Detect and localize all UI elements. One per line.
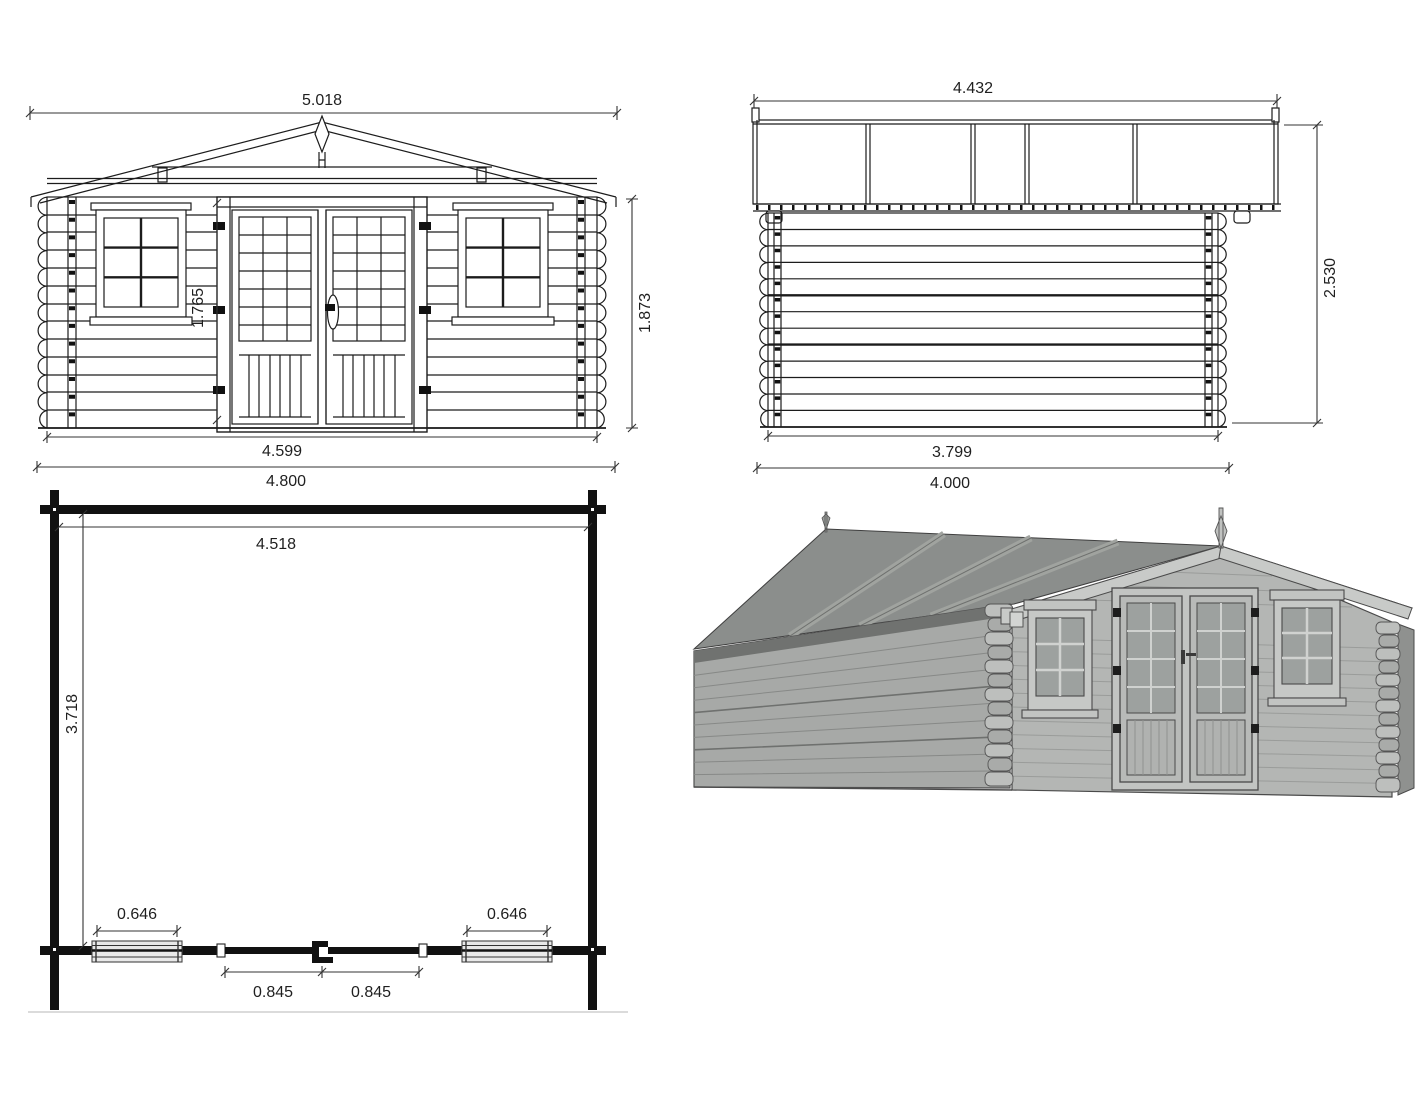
technical-drawing: 5.018 4.599 4.800 1.873 1.765 bbox=[0, 0, 1422, 1100]
dim-wall-width-line bbox=[43, 431, 601, 443]
plan-door-jamb-left bbox=[217, 944, 225, 957]
side-roof-band bbox=[753, 120, 1278, 204]
dim-wall-height-text: 1.873 bbox=[637, 293, 654, 333]
dim-door-leaves-line bbox=[221, 966, 423, 978]
window-head-trim bbox=[453, 203, 553, 210]
side-log-ends-left bbox=[760, 213, 768, 427]
plan-wall-top bbox=[40, 505, 606, 514]
plan-double-door bbox=[217, 941, 427, 963]
roof-finial-stem bbox=[319, 152, 325, 168]
dim-inner-width-line bbox=[55, 523, 592, 531]
door-handle-plate bbox=[328, 295, 339, 329]
side-dimensions bbox=[750, 94, 1323, 474]
window-sill bbox=[452, 317, 554, 325]
corner-gap bbox=[591, 508, 594, 511]
plan-door-leaf-left bbox=[225, 947, 316, 954]
dim-roof-length-line bbox=[750, 94, 1281, 108]
dim-overall-height-text: 2.530 bbox=[1322, 258, 1339, 298]
plan-door-leaf-right bbox=[328, 947, 419, 954]
roof-band-end-edges bbox=[757, 120, 1274, 204]
dim-roof-length-text: 4.432 bbox=[953, 80, 993, 97]
dim-window-right-line bbox=[463, 925, 551, 937]
window-3d-right bbox=[1268, 590, 1346, 706]
corner-gap bbox=[53, 508, 56, 511]
log-ends-left bbox=[38, 197, 47, 428]
dim-door-leaf-right-text: 0.845 bbox=[351, 984, 391, 1001]
dim-overall-length-text: 4.000 bbox=[930, 475, 970, 492]
plan-wall-left bbox=[50, 490, 59, 1010]
dim-door-height-text: 1.765 bbox=[190, 288, 207, 328]
dim-door-leaf-left-text: 0.845 bbox=[253, 984, 293, 1001]
dim-inner-depth-text: 3.718 bbox=[64, 694, 81, 734]
corner-gap bbox=[591, 948, 594, 951]
side-log-ends-right bbox=[1218, 213, 1226, 427]
door-latch bbox=[325, 304, 335, 311]
roof-end-tab-right bbox=[1272, 108, 1279, 122]
plan-door-jamb-right bbox=[419, 944, 427, 957]
side-elevation-view: 4.432 2.530 3.799 4.000 bbox=[750, 80, 1339, 492]
dim-overall-width-text: 4.800 bbox=[266, 473, 306, 490]
plan-window-right bbox=[462, 941, 552, 962]
perspective-3d-view bbox=[694, 508, 1414, 797]
side-wall-thick-logs bbox=[768, 295, 1218, 344]
dim-window-left-text: 0.646 bbox=[117, 906, 157, 923]
dim-window-right-text: 0.646 bbox=[487, 906, 527, 923]
dim-inner-width-text: 4.518 bbox=[256, 536, 296, 553]
front-double-door bbox=[213, 197, 431, 432]
window-sill bbox=[90, 317, 192, 325]
dim-roof-width-text: 5.018 bbox=[302, 92, 342, 109]
corner-gap bbox=[53, 948, 56, 951]
cabin-technical-drawing-page: 5.018 4.599 4.800 1.873 1.765 bbox=[0, 0, 1422, 1100]
gable-horizontal-boards bbox=[47, 167, 597, 184]
dim-window-left-line bbox=[93, 925, 181, 937]
side-wall bbox=[768, 213, 1218, 427]
side-notch-strip-right bbox=[1205, 213, 1212, 427]
right-side-wall-sliver bbox=[1398, 624, 1414, 795]
front-left-window bbox=[90, 203, 192, 325]
eave-lip-right bbox=[1234, 211, 1250, 223]
roof-panel-dividers bbox=[866, 124, 1137, 204]
front-gable-finial bbox=[1215, 508, 1227, 548]
roof-finial bbox=[315, 116, 329, 152]
log-ends-right bbox=[597, 197, 606, 428]
front-right-window bbox=[452, 203, 554, 325]
roof-end-tab-left bbox=[752, 108, 759, 122]
dim-wall-length-line bbox=[764, 430, 1222, 442]
plan-wall-right bbox=[588, 490, 597, 1010]
door-3d bbox=[1112, 588, 1259, 790]
plan-window-left bbox=[92, 941, 182, 962]
dim-wall-length-text: 3.799 bbox=[932, 444, 972, 461]
side-notch-strip-left bbox=[774, 213, 781, 427]
eave-bracket bbox=[1010, 612, 1023, 627]
front-elevation-view: 5.018 4.599 4.800 1.873 1.765 bbox=[26, 92, 654, 490]
window-head-trim bbox=[91, 203, 191, 210]
dim-overall-width-line bbox=[33, 461, 619, 473]
window-3d-left bbox=[1022, 600, 1098, 718]
dim-overall-length-line bbox=[753, 462, 1233, 474]
floor-plan-view: 4.518 3.718 0.646 0.646 0.845 0.845 bbox=[28, 490, 628, 1012]
side-wall-log-lines bbox=[768, 230, 1218, 411]
dim-wall-width-text: 4.599 bbox=[262, 443, 302, 460]
